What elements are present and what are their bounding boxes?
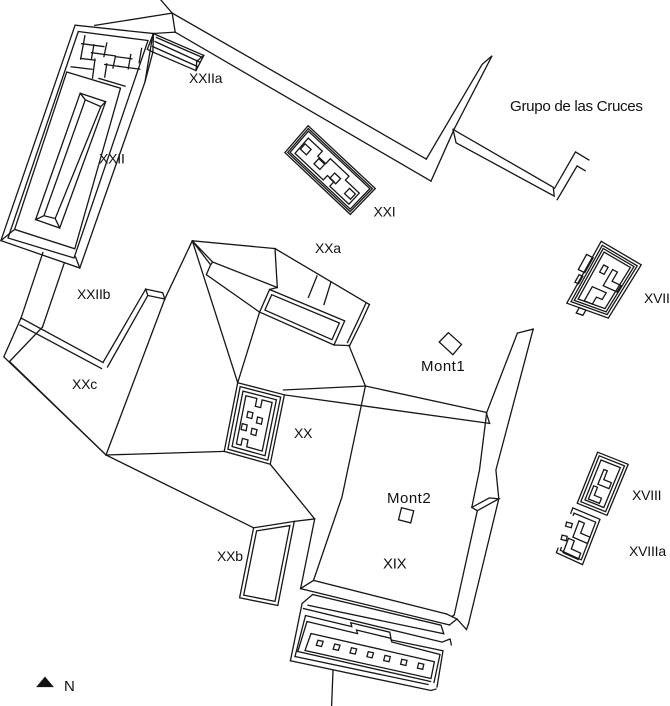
svg-text:Grupo de las Cruces: Grupo de las Cruces: [510, 98, 643, 115]
svg-text:Mont1: Mont1: [421, 358, 465, 375]
svg-text:XX: XX: [294, 425, 313, 441]
svg-text:XXb: XXb: [217, 548, 243, 564]
svg-text:XIX: XIX: [383, 556, 407, 573]
svg-text:XXI: XXI: [374, 204, 396, 220]
svg-text:XXIIb: XXIIb: [77, 286, 111, 302]
svg-text:Mont2: Mont2: [387, 490, 431, 507]
svg-text:XXII: XXII: [99, 151, 125, 167]
svg-text:XXa: XXa: [315, 240, 341, 256]
svg-text:XVII: XVII: [644, 290, 670, 306]
svg-text:N: N: [64, 678, 75, 695]
svg-text:XXc: XXc: [72, 376, 97, 392]
svg-text:XXIIa: XXIIa: [189, 70, 223, 86]
svg-text:XVIII: XVIII: [632, 487, 661, 503]
svg-text:XVIIIa: XVIIIa: [629, 543, 666, 559]
